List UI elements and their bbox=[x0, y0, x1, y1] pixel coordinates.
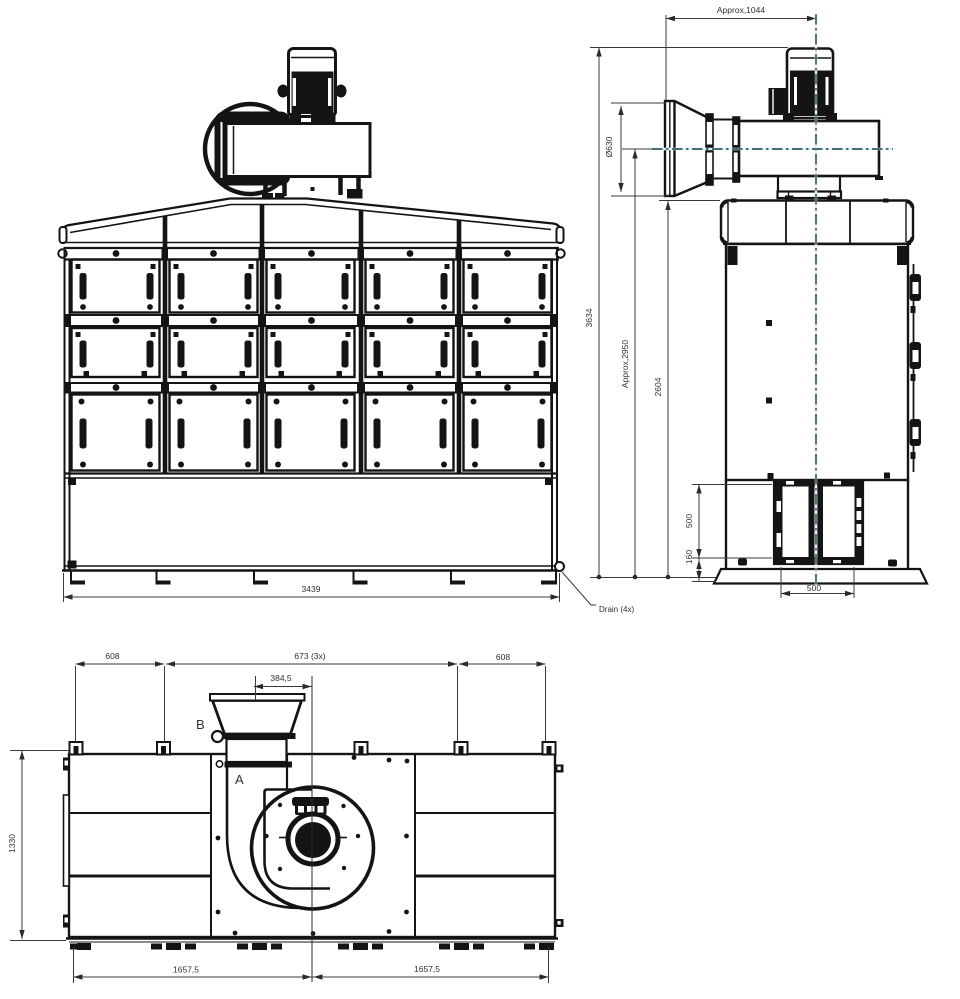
svg-text:384,5: 384,5 bbox=[270, 673, 292, 683]
svg-text:Drain (4x): Drain (4x) bbox=[599, 605, 634, 614]
svg-text:500: 500 bbox=[684, 514, 694, 528]
svg-text:Approx,2950: Approx,2950 bbox=[620, 340, 630, 388]
svg-text:B: B bbox=[196, 717, 205, 732]
svg-text:1657,5: 1657,5 bbox=[173, 965, 199, 975]
svg-text:608: 608 bbox=[105, 651, 119, 661]
svg-text:1657,5: 1657,5 bbox=[414, 964, 440, 974]
svg-text:3439: 3439 bbox=[302, 584, 321, 594]
svg-text:673 (3x): 673 (3x) bbox=[294, 651, 325, 661]
svg-text:Approx,1044: Approx,1044 bbox=[717, 5, 765, 15]
svg-text:608: 608 bbox=[496, 652, 510, 662]
svg-text:Ø630: Ø630 bbox=[604, 136, 614, 157]
svg-text:500: 500 bbox=[807, 583, 821, 593]
svg-text:3634: 3634 bbox=[584, 308, 594, 327]
svg-text:160: 160 bbox=[684, 550, 694, 564]
svg-text:A: A bbox=[235, 772, 244, 787]
svg-text:1330: 1330 bbox=[7, 834, 17, 853]
svg-text:2604: 2604 bbox=[653, 377, 663, 396]
